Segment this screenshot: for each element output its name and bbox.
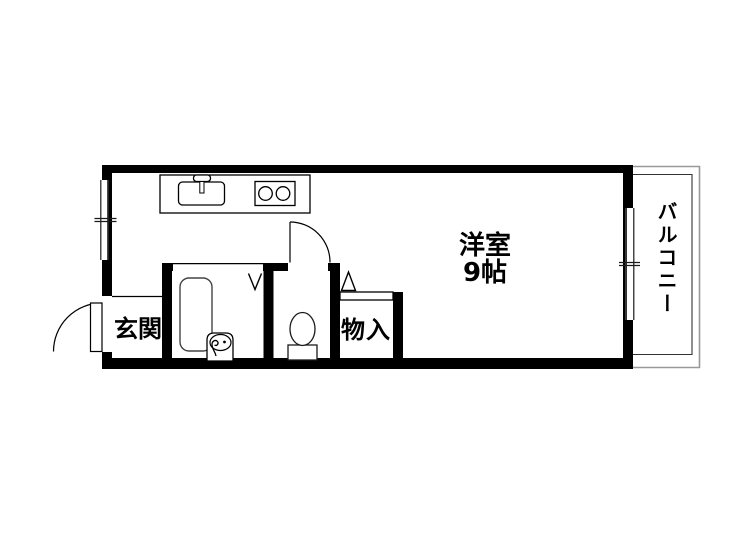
floor-plan: 玄関 洋室 9帖 物入 バルコニー [0, 0, 750, 550]
kitchen-counter [160, 175, 310, 213]
wall-bath-toilet [264, 263, 274, 369]
entrance-door-swing-arc [54, 303, 103, 352]
stove-burner-icon [259, 187, 273, 201]
storage-opening-triangle-mark [342, 272, 356, 291]
bathroom-folding-door-v-mark [249, 274, 262, 290]
faucet-stem-icon [200, 182, 204, 194]
door-arc [290, 222, 330, 263]
washbasin-drain-dot [223, 341, 226, 344]
wall-toilet-right [330, 263, 340, 369]
storage-label: 物入 [337, 318, 395, 343]
storage-sliding-panel [340, 292, 393, 300]
toilet-tank [288, 345, 317, 360]
entrance-label: 玄関 [110, 317, 166, 342]
main-room-size: 9帖 [415, 260, 555, 287]
wall-top [102, 165, 633, 173]
door-leaf [91, 303, 103, 352]
main-room-label: 洋室 9帖 [415, 233, 555, 287]
toilet-bowl [290, 313, 315, 346]
wall-bottom [102, 358, 633, 369]
washbasin-icon [207, 333, 233, 361]
wall-entrance-bath [162, 263, 172, 369]
faucet-crossbar-icon [194, 175, 211, 182]
toilet-door-swing-arc [290, 222, 330, 263]
main-room-name: 洋室 [415, 233, 555, 260]
toilet-door-opening [288, 263, 328, 271]
toilet-icon [288, 313, 317, 361]
balcony-label: バルコニー [648, 201, 676, 341]
stove-burner-icon [276, 187, 290, 201]
floor-plan-drawing [0, 0, 750, 550]
